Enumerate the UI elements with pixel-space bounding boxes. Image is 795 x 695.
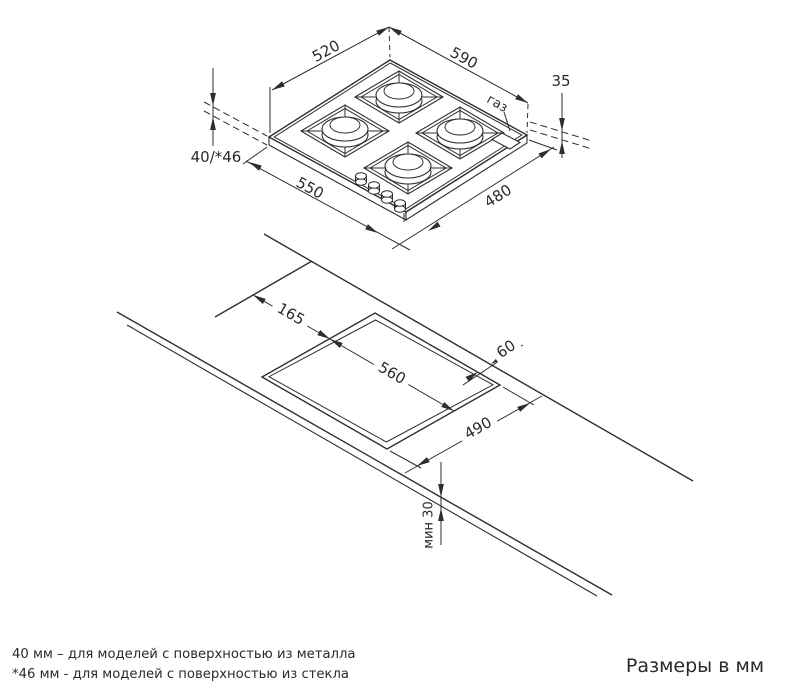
cutout-inner xyxy=(269,320,493,442)
technical-drawing: газ 520 590 xyxy=(0,0,795,695)
captions: 40 мм – для моделей с поверхностью из ме… xyxy=(12,647,764,682)
dimension-165: 165 xyxy=(252,292,332,341)
units-note: Размеры в мм xyxy=(626,655,764,677)
dim-label-min-30: мин 30 xyxy=(422,501,437,548)
dimension-min-30: мин 30 xyxy=(422,462,444,549)
dimension-490: 490 xyxy=(390,387,542,473)
dimension-40-46: 40/*46 xyxy=(191,68,267,166)
countertop-front-edge xyxy=(117,312,612,595)
footnote-metal-models: 40 мм – для моделей с поверхностью из ме… xyxy=(12,647,356,662)
countertop-front-thickness-edge xyxy=(127,325,597,596)
countertop-back-edge xyxy=(264,234,693,481)
dim-label-35: 35 xyxy=(551,72,570,90)
footnote-glass-models: *46 мм - для моделей с поверхностью из с… xyxy=(12,667,349,682)
page: { "colors": { "ink": "#2e2e2e", "backgro… xyxy=(0,0,795,695)
dim-label-40-46: 40/*46 xyxy=(191,148,242,166)
dimension-35: 35 xyxy=(530,72,592,158)
gas-label-group: газ xyxy=(484,92,510,116)
gas-label: газ xyxy=(484,92,510,116)
hob-top-view: газ 520 590 xyxy=(191,24,592,250)
countertop-cutout-view: 165 560 60 xyxy=(117,234,693,596)
dim-label-480: 480 xyxy=(481,181,515,211)
dim-label-550: 550 xyxy=(293,173,327,202)
